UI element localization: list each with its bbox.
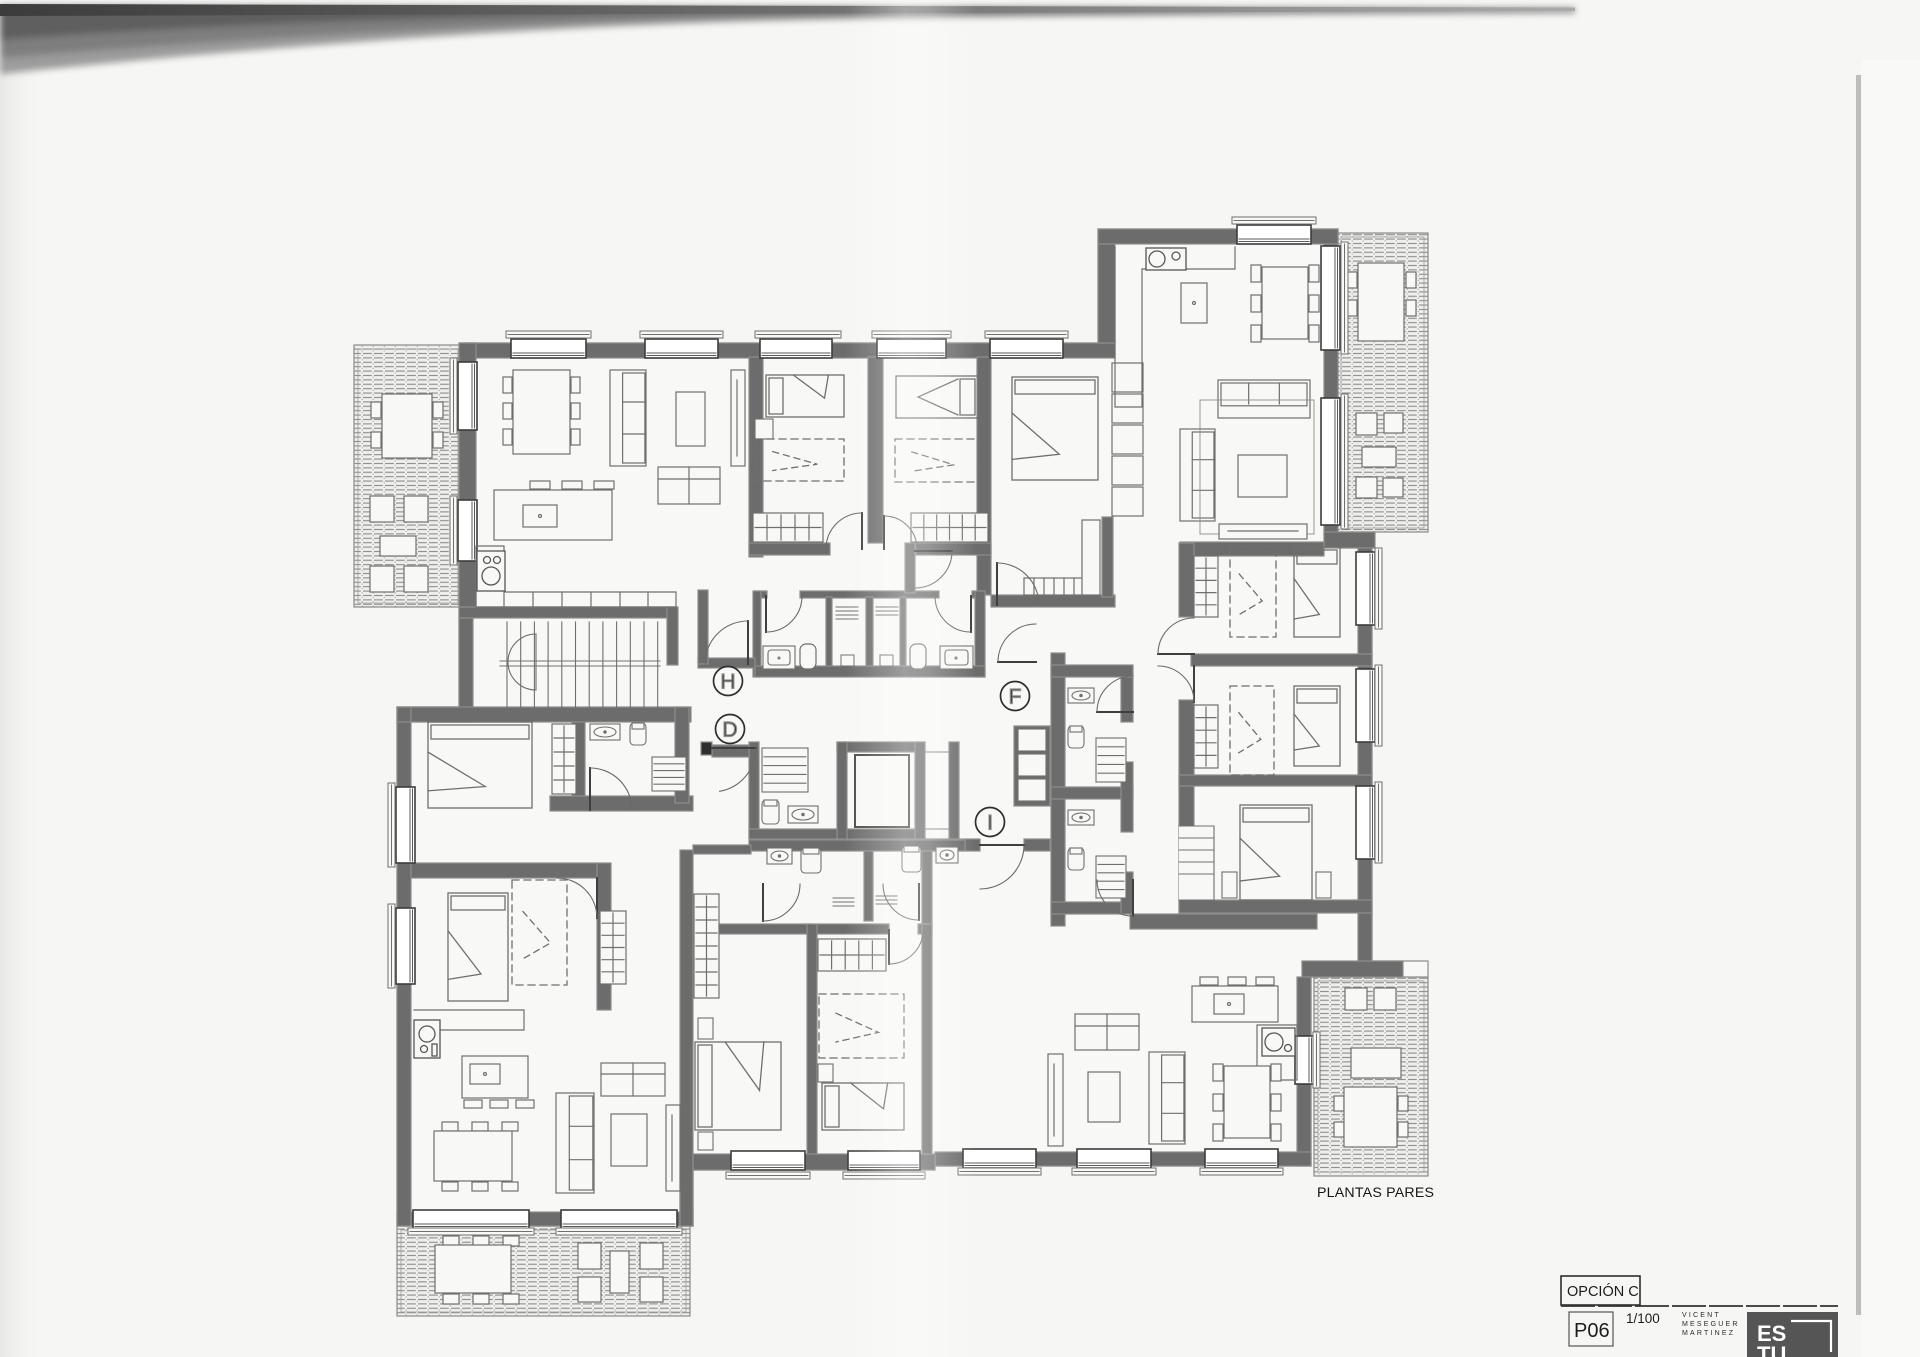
svg-text:VICENT: VICENT [1682, 1312, 1721, 1319]
svg-text:P06: P06 [1574, 1320, 1610, 1342]
svg-text:MARTINEZ: MARTINEZ [1682, 1330, 1735, 1337]
svg-text:OPCIÓN C: OPCIÓN C [1567, 1283, 1639, 1300]
svg-text:PLANTAS PARES: PLANTAS PARES [1317, 1185, 1434, 1201]
svg-text:MESEGUER: MESEGUER [1682, 1321, 1740, 1328]
svg-text:1/100: 1/100 [1626, 1311, 1660, 1326]
svg-text:TU: TU [1757, 1342, 1786, 1357]
